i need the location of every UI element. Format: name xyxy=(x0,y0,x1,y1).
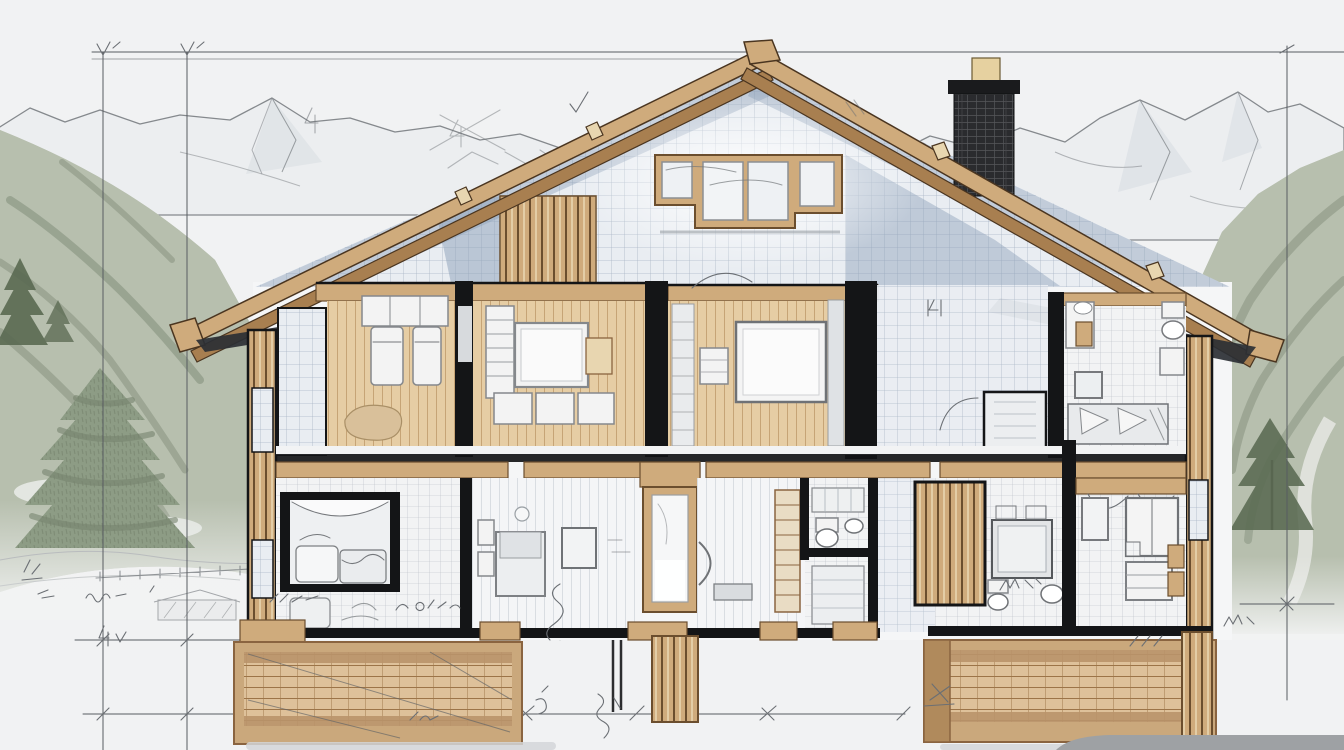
room-landing-corridor xyxy=(877,285,1048,455)
wardrobe-slat-wall xyxy=(915,482,985,605)
room-dining-bath-nook xyxy=(915,478,1075,632)
bed xyxy=(371,327,403,385)
right-wall-window xyxy=(1189,480,1208,540)
blanket xyxy=(340,550,386,583)
door-lintel xyxy=(640,462,700,487)
room-bedroom-center xyxy=(458,301,648,453)
wall-art xyxy=(562,528,596,568)
nightstand xyxy=(478,520,494,545)
interior-wall xyxy=(845,281,877,459)
interior-wall xyxy=(645,281,668,457)
room-utility-right xyxy=(1076,478,1186,632)
base-plate xyxy=(928,626,1212,636)
wall-art xyxy=(1075,372,1102,398)
ground-shadow xyxy=(246,742,556,750)
interior-wall xyxy=(460,478,472,632)
sofa xyxy=(296,546,338,582)
foundation-crib-left xyxy=(234,642,522,744)
headboard xyxy=(586,338,612,374)
shower-tray xyxy=(812,566,864,624)
room-bedroom-lower xyxy=(472,478,643,632)
timber-post xyxy=(652,636,698,722)
nightstand xyxy=(1076,322,1092,346)
pillow-area xyxy=(500,532,541,558)
wall-clock xyxy=(515,507,529,521)
architectural-sketch xyxy=(0,0,1344,750)
dresser xyxy=(578,393,614,424)
toilet xyxy=(988,594,1008,610)
wood-box xyxy=(1168,572,1184,596)
interior-wall xyxy=(1048,292,1064,458)
room-hallway xyxy=(697,478,805,632)
cubby-shelf xyxy=(775,490,800,612)
wood-box xyxy=(1168,545,1184,568)
toilet xyxy=(816,529,838,547)
door-lintel xyxy=(1076,478,1186,494)
floor-plan-upper xyxy=(278,273,1186,459)
left-wall-window xyxy=(252,388,273,452)
interior-wall xyxy=(1062,440,1076,632)
bench xyxy=(714,584,752,600)
dresser xyxy=(536,393,574,424)
round-rug xyxy=(345,405,402,440)
window-bay-panel xyxy=(278,308,326,455)
room-bay-lounge xyxy=(276,478,460,632)
room-bedroom-right xyxy=(1064,302,1186,455)
vanity-mirror xyxy=(1074,302,1092,314)
toilet-tank xyxy=(1162,302,1184,318)
wall-art xyxy=(1082,498,1108,540)
wall-cabinet xyxy=(1160,348,1184,375)
room-bedroom-left xyxy=(278,296,455,455)
dresser xyxy=(494,393,532,424)
storey-divider xyxy=(276,446,1186,478)
wood-slat-panel xyxy=(500,196,596,288)
wall-cabinet xyxy=(828,300,844,446)
chimney-cap xyxy=(948,80,1020,94)
left-wall-window xyxy=(252,540,273,598)
window-pane xyxy=(748,162,788,220)
basin xyxy=(1041,585,1063,603)
wardrobe xyxy=(362,296,448,326)
drawer-unit xyxy=(1126,562,1172,600)
side-shelf xyxy=(700,348,728,384)
window-pane xyxy=(800,162,834,206)
entry-door xyxy=(640,462,700,612)
sketch-canvas xyxy=(0,0,1344,750)
sink xyxy=(845,519,863,533)
foundation-crib-right xyxy=(924,632,1216,742)
wall-shelf xyxy=(458,306,472,362)
window-pane xyxy=(703,162,743,220)
wall-closet xyxy=(672,304,694,446)
bed xyxy=(413,327,441,385)
shower-box xyxy=(984,392,1046,452)
nightstand xyxy=(478,552,494,576)
room-bathroom-center xyxy=(800,478,878,632)
ground-mound xyxy=(1056,735,1344,750)
toilet xyxy=(1162,321,1184,339)
